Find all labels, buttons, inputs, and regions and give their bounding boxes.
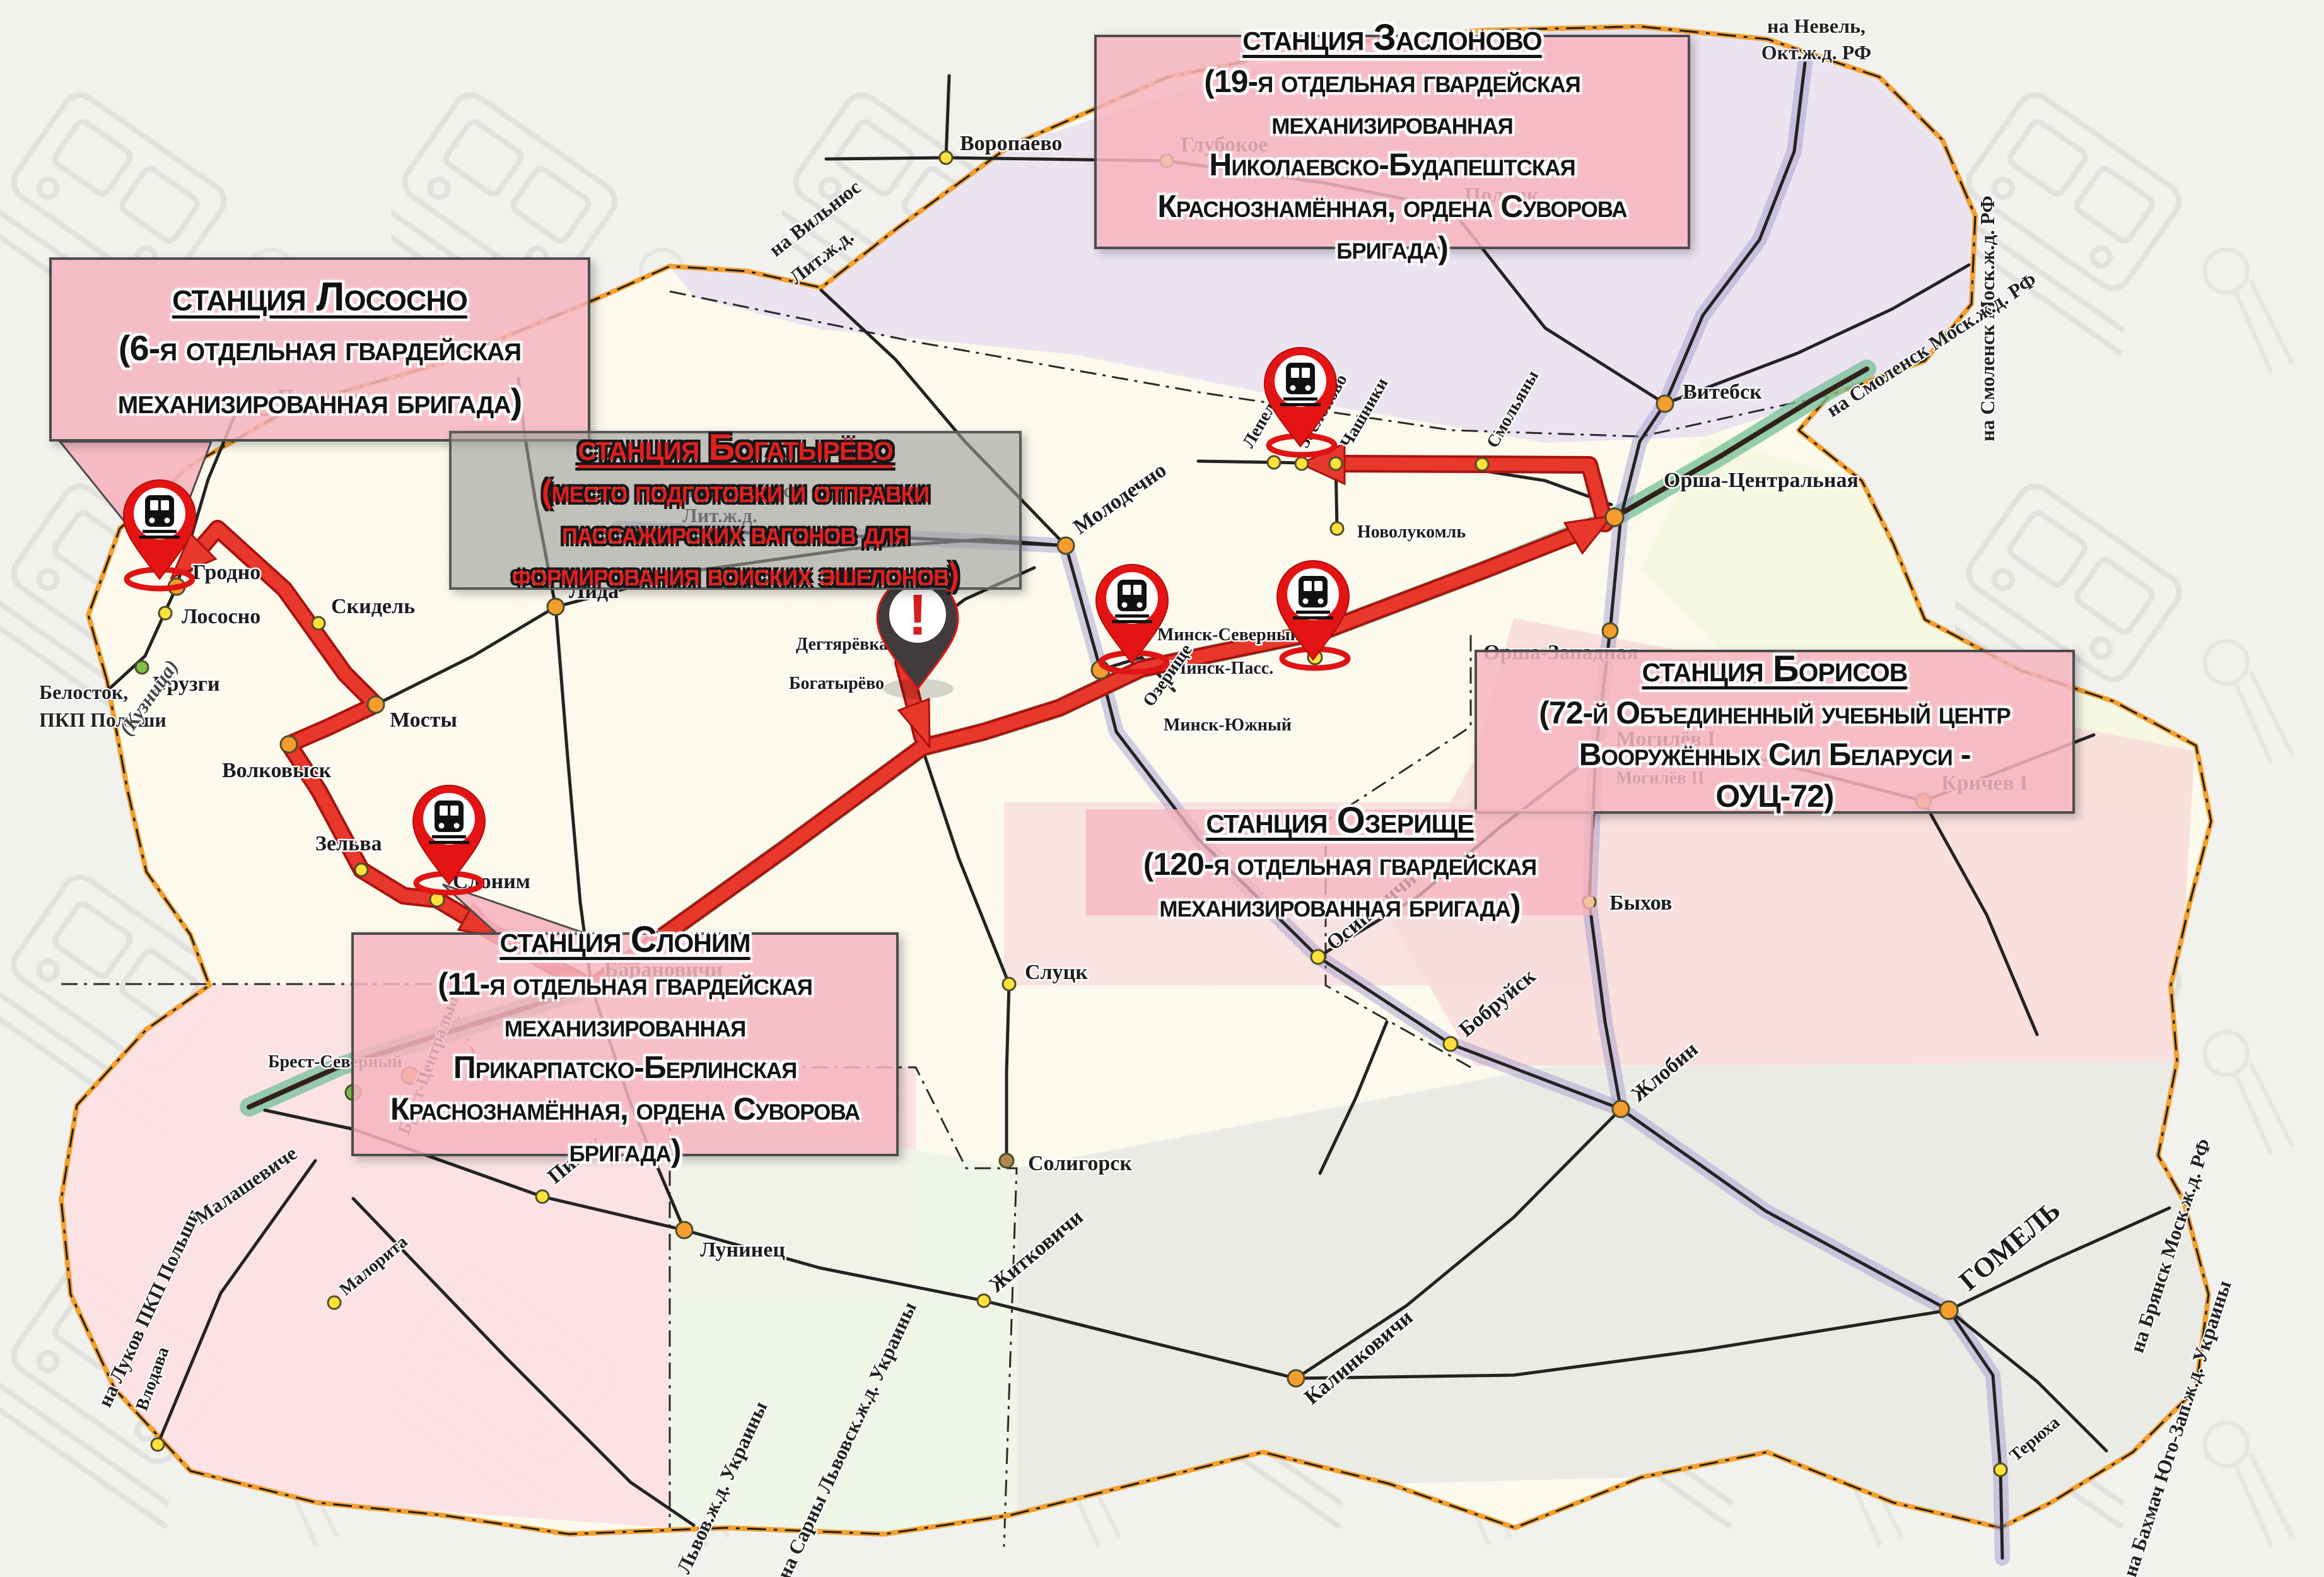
- station-label: Витебск: [1683, 380, 1762, 404]
- station-dot: [151, 1438, 164, 1451]
- station-label: Зельва: [315, 832, 382, 855]
- junction-dot: [1940, 1301, 1958, 1319]
- station-dot: [1268, 456, 1280, 469]
- callout-title: станция Богатырёво: [578, 425, 893, 471]
- station-dot: [159, 607, 172, 619]
- station-dot: [1000, 1154, 1013, 1168]
- station-dot: [136, 661, 148, 674]
- junction-dot: [1657, 396, 1673, 412]
- station-label: Лунинец: [700, 1238, 785, 1262]
- station-dot: [328, 1296, 341, 1309]
- callout-title: станция Лососно: [172, 271, 467, 322]
- callout-line: Краснознамённая, ордена Суворова: [1157, 185, 1626, 227]
- junction-dot: [1058, 537, 1074, 554]
- station-dot: [1295, 457, 1308, 470]
- station-label: Волковыск: [222, 759, 332, 782]
- station-label: Богатырёво: [789, 674, 884, 693]
- station-label: Минск-Южный: [1164, 715, 1292, 735]
- callout-line: (11-я отдельная гвардейская: [438, 963, 812, 1005]
- callout-line: (120-я отдельная гвардейская: [1143, 843, 1536, 885]
- station-dot: [1994, 1463, 2007, 1476]
- station-label: Мосты: [390, 708, 457, 732]
- station-dot: [1329, 457, 1342, 470]
- callout-title: станция Заслоново: [1242, 15, 1541, 61]
- external-label: Белосток,: [39, 681, 128, 703]
- station-label: Гродно: [192, 561, 260, 584]
- junction-dot: [1606, 508, 1623, 526]
- junction-dot: [1603, 623, 1618, 638]
- station-dot: [1444, 1037, 1457, 1051]
- callout-line: (6-я отдельная гвардейская: [119, 322, 521, 375]
- external-label: на Невель,: [1767, 15, 1866, 37]
- station-dot: [940, 151, 952, 164]
- station-label: Орша-Центральная: [1664, 469, 1859, 492]
- callout-line: Николаевско-Будапештская: [1209, 144, 1575, 185]
- callout-line: Вооружённых Сил Беларуси -: [1579, 734, 1971, 775]
- junction-dot: [547, 599, 564, 615]
- station-dot: [536, 1190, 549, 1203]
- callout-line: механизированная бригада): [1159, 885, 1520, 927]
- callout-line: бригада): [569, 1130, 681, 1171]
- station-dot: [978, 1294, 990, 1307]
- callout-line: Прикарпатско-Берлинская: [453, 1046, 797, 1088]
- callout-line: (место подготовки и отправки: [542, 471, 929, 512]
- station-label: Воропаево: [960, 132, 1062, 155]
- callout-title: станция Озерище: [1206, 798, 1473, 844]
- callout-title: станция Борисов: [1642, 647, 1908, 693]
- station-dot: [1311, 950, 1325, 964]
- station-label: Лососно: [182, 605, 260, 628]
- station-dot: [1331, 522, 1343, 535]
- callout-line: ОУЦ-72): [1715, 775, 1833, 817]
- callout-lososno: станция Лососно (6-я отдельная гвардейск…: [49, 257, 590, 442]
- callout-slonim: станция Слоним (11-я отдельная гвардейск…: [351, 932, 899, 1156]
- station-label: Скидель: [331, 595, 415, 618]
- callout-line: механизированная: [1271, 102, 1513, 144]
- callout-bogatyrevo: станция Богатырёво (место подготовки и о…: [449, 431, 1022, 590]
- station-dot: [312, 617, 325, 630]
- callout-title: станция Слоним: [499, 917, 750, 963]
- callout-line: механизированная бригада): [118, 375, 522, 428]
- station-dot: [355, 864, 368, 876]
- callout-line: (72-й Объединенный учебный центр: [1539, 692, 2010, 734]
- station-label: Солигорск: [1028, 1152, 1132, 1175]
- station-label: Слуцк: [1025, 961, 1088, 984]
- station-label: Дегтярёвка: [796, 635, 888, 654]
- junction-dot: [281, 736, 297, 753]
- callout-ozerishche: станция Озерище (120-я отдельная гвардей…: [1086, 809, 1594, 915]
- station-dot: [1003, 978, 1015, 990]
- railway-map-canvas: !: [0, 0, 2324, 1577]
- station-label: Быхов: [1609, 891, 1672, 915]
- junction-dot: [1613, 1101, 1629, 1117]
- callout-line: формирования воиских эшелонов): [512, 554, 959, 595]
- external-label: Окт.ж.д. РФ: [1761, 41, 1872, 64]
- callout-zaslonovo: станция Заслоново (19-я отдельная гварде…: [1094, 35, 1690, 249]
- station-dot: [1476, 458, 1488, 471]
- callout-line: бригада): [1336, 227, 1448, 269]
- callout-borisov: станция Борисов (72-й Объединенный учебн…: [1474, 650, 2075, 814]
- callout-line: пассажирских вагонов для: [562, 512, 909, 554]
- junction-dot: [1288, 1370, 1304, 1386]
- junction-dot: [676, 1222, 692, 1238]
- station-label: Новолукомль: [1357, 522, 1466, 542]
- callout-line: Краснознамённая, ордена Суворова: [390, 1088, 860, 1130]
- callout-line: (19-я отдельная гвардейская: [1204, 61, 1580, 102]
- callout-line: механизированная: [505, 1005, 746, 1046]
- junction-dot: [368, 696, 384, 713]
